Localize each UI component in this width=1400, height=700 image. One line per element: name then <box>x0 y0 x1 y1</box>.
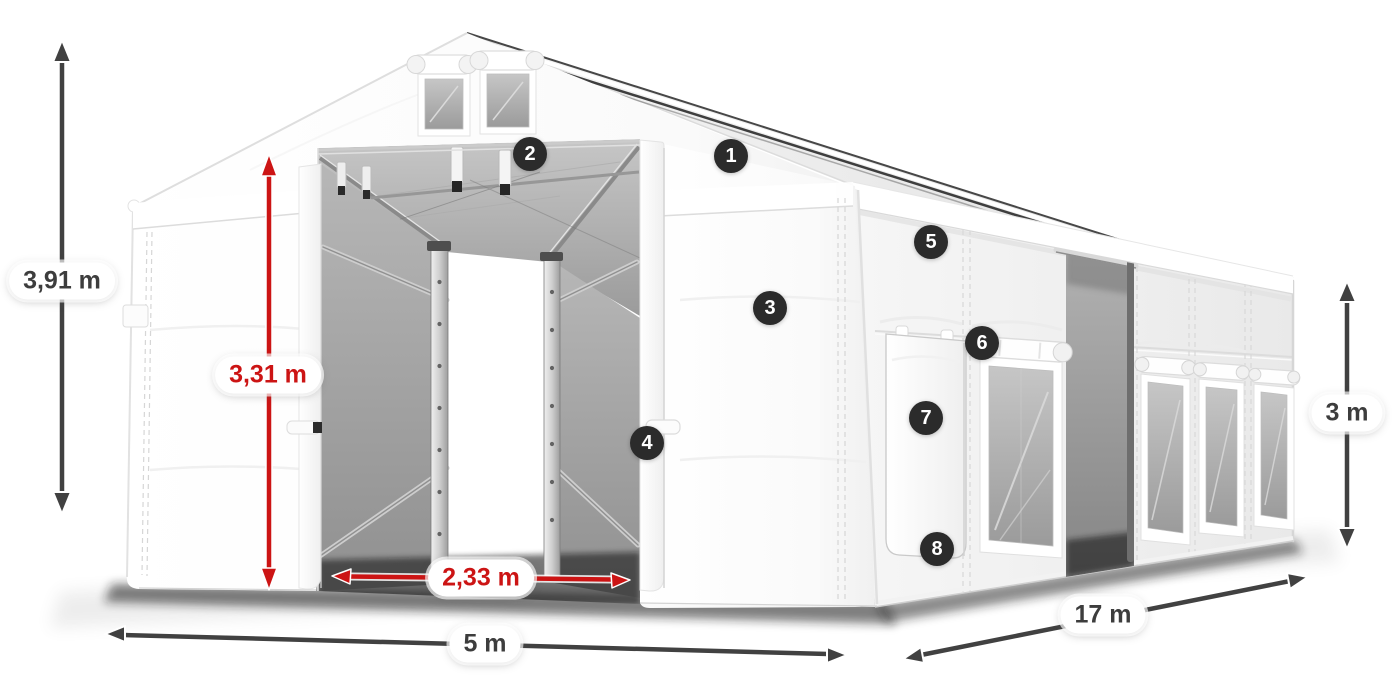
entrance-interior <box>318 139 640 604</box>
tent-dimension-diagram: 3,91 m 3,31 m 2,33 m 5 m 17 m 3 m 1 2 3 … <box>0 0 1400 700</box>
length-label: 17 m <box>1061 597 1146 634</box>
front-width-label: 5 m <box>449 626 520 663</box>
entrance-width-label: 2,33 m <box>428 560 534 597</box>
side-mesh-window-1 <box>968 336 1073 558</box>
feature-marker-3: 3 <box>753 291 787 325</box>
vent-window-left <box>407 55 477 136</box>
tent-illustration <box>0 0 1400 700</box>
feature-marker-6: 6 <box>965 326 999 360</box>
feature-marker-1: 1 <box>714 139 748 173</box>
entrance-height-label: 3,31 m <box>215 357 321 394</box>
feature-marker-7: 7 <box>909 401 943 435</box>
side-mesh-window-4 <box>1248 368 1300 530</box>
vent-window-right <box>470 51 544 134</box>
feature-marker-8: 8 <box>920 532 954 566</box>
partition-post-right <box>540 252 563 583</box>
interior-right-mesh-wall <box>549 259 640 598</box>
partition-post-left <box>427 241 451 585</box>
feature-marker-4: 4 <box>630 426 664 460</box>
side-mesh-window-3 <box>1193 362 1250 537</box>
side-mesh-window-2 <box>1134 356 1196 545</box>
side-door-flap <box>886 326 966 558</box>
total-height-label: 3,91 m <box>9 263 115 300</box>
side-wall-open-gap <box>1056 248 1136 577</box>
feature-marker-2: 2 <box>513 137 547 171</box>
side-height-label: 3 m <box>1311 395 1382 432</box>
feature-marker-5: 5 <box>914 225 948 259</box>
